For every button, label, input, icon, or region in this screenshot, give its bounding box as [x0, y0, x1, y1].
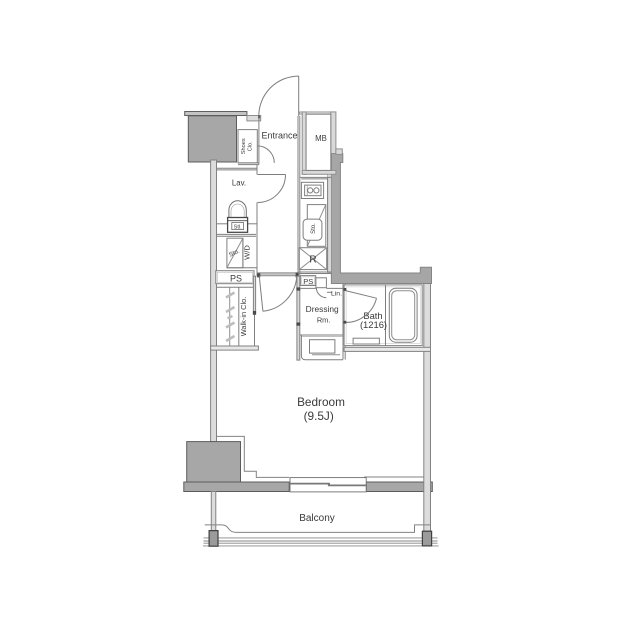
svg-text:PS: PS	[230, 274, 242, 284]
svg-text:Lav.: Lav.	[232, 178, 246, 187]
svg-text:R: R	[309, 254, 316, 265]
svg-text:(9.5J): (9.5J)	[304, 409, 334, 423]
svg-text:Rm.: Rm.	[317, 315, 331, 324]
svg-text:Walk-in Clo.: Walk-in Clo.	[239, 297, 248, 337]
svg-text:MB: MB	[315, 134, 327, 143]
svg-text:W/D: W/D	[243, 245, 252, 260]
svg-text:Entrance: Entrance	[261, 131, 297, 141]
svg-text:Clo.: Clo.	[248, 141, 254, 151]
svg-text:Stl.: Stl.	[234, 225, 243, 231]
svg-text:Lin.: Lin.	[331, 290, 342, 297]
svg-text:PS: PS	[303, 277, 313, 286]
svg-text:Sto.: Sto.	[311, 223, 317, 234]
svg-text:(1216): (1216)	[360, 319, 387, 330]
svg-text:Bedroom: Bedroom	[297, 395, 345, 409]
svg-text:Balcony: Balcony	[299, 513, 335, 524]
svg-text:Dressing: Dressing	[306, 304, 339, 314]
svg-text:Shoes: Shoes	[241, 138, 247, 154]
